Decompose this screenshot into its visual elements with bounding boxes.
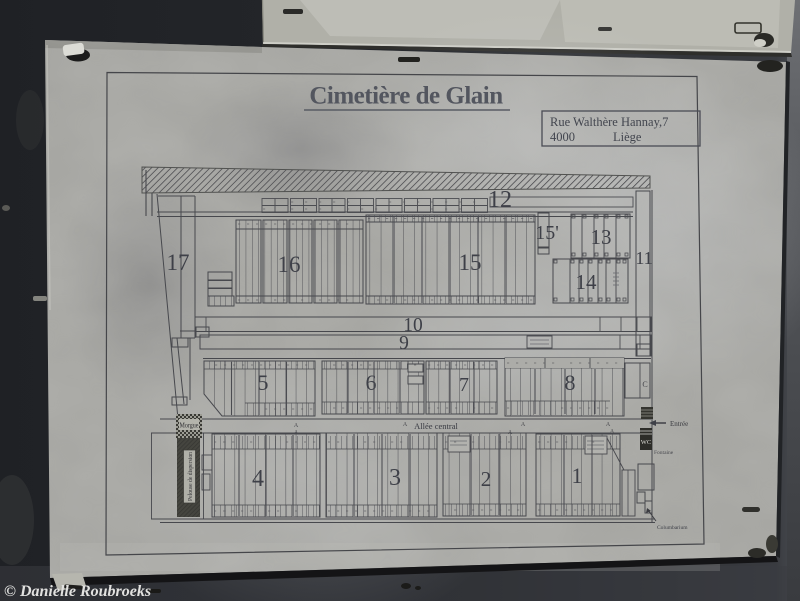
svg-text:C: C <box>642 380 647 389</box>
svg-text:8: 8 <box>565 370 576 395</box>
svg-text:A: A <box>403 422 408 428</box>
svg-text:Columbarium: Columbarium <box>657 525 688 531</box>
svg-text:Pelouse de dispersion: Pelouse de dispersion <box>188 452 194 501</box>
svg-text:2: 2 <box>481 467 492 491</box>
svg-text:Entrée: Entrée <box>670 420 688 428</box>
svg-text:7: 7 <box>459 374 469 396</box>
svg-text:A: A <box>521 422 526 428</box>
svg-text:16: 16 <box>278 252 301 277</box>
svg-text:Fontaine: Fontaine <box>654 450 674 456</box>
svg-text:9: 9 <box>399 333 409 354</box>
svg-text:11: 11 <box>635 248 652 268</box>
svg-text:14: 14 <box>576 270 598 294</box>
svg-text:Rue Walthère Hannay,7: Rue Walthère Hannay,7 <box>550 115 668 129</box>
svg-text:Liège: Liège <box>613 130 642 144</box>
svg-text:Cimetière de Glain: Cimetière de Glain <box>309 83 503 110</box>
svg-text:13: 13 <box>591 225 612 249</box>
svg-text:Morgue: Morgue <box>180 421 200 430</box>
svg-text:17: 17 <box>167 250 190 275</box>
svg-text:A: A <box>294 423 299 429</box>
svg-text:6: 6 <box>366 370 377 395</box>
svg-text:1: 1 <box>572 463 583 488</box>
svg-text:4: 4 <box>252 466 264 492</box>
svg-text:Allée central: Allée central <box>414 421 458 431</box>
svg-text:3: 3 <box>389 465 401 491</box>
svg-text:A: A <box>606 422 611 428</box>
svg-text:WC: WC <box>641 439 651 446</box>
svg-text:15': 15' <box>535 222 559 244</box>
svg-text:12: 12 <box>488 187 512 213</box>
svg-text:4000: 4000 <box>550 130 575 144</box>
svg-text:© Danielle Roubroeks: © Danielle Roubroeks <box>4 583 151 600</box>
